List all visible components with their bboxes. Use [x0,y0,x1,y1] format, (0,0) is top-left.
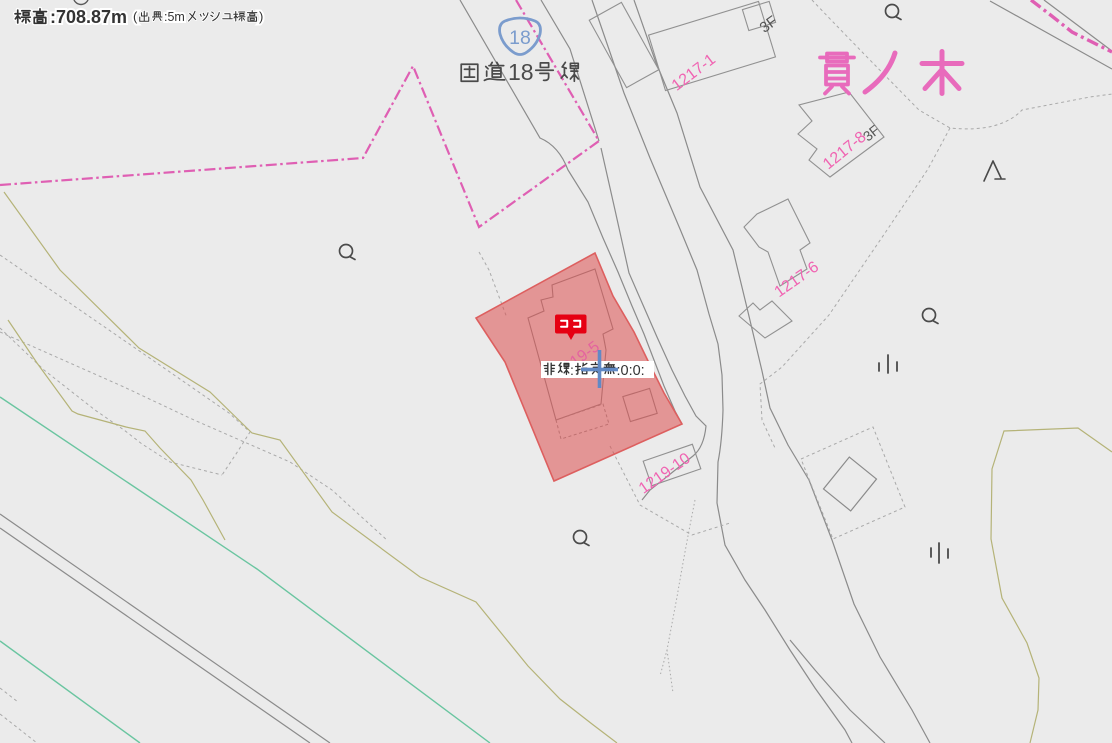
svg-text::0:0:: :0:0: [617,363,645,379]
svg-text:18: 18 [509,27,531,49]
svg-text::: : [570,362,574,378]
svg-text::5m: :5m [164,10,185,24]
svg-text::708.87m: :708.87m [50,7,127,27]
svg-text:(: ( [133,9,138,24]
svg-text:): ) [259,9,263,24]
svg-text:18: 18 [508,59,534,85]
